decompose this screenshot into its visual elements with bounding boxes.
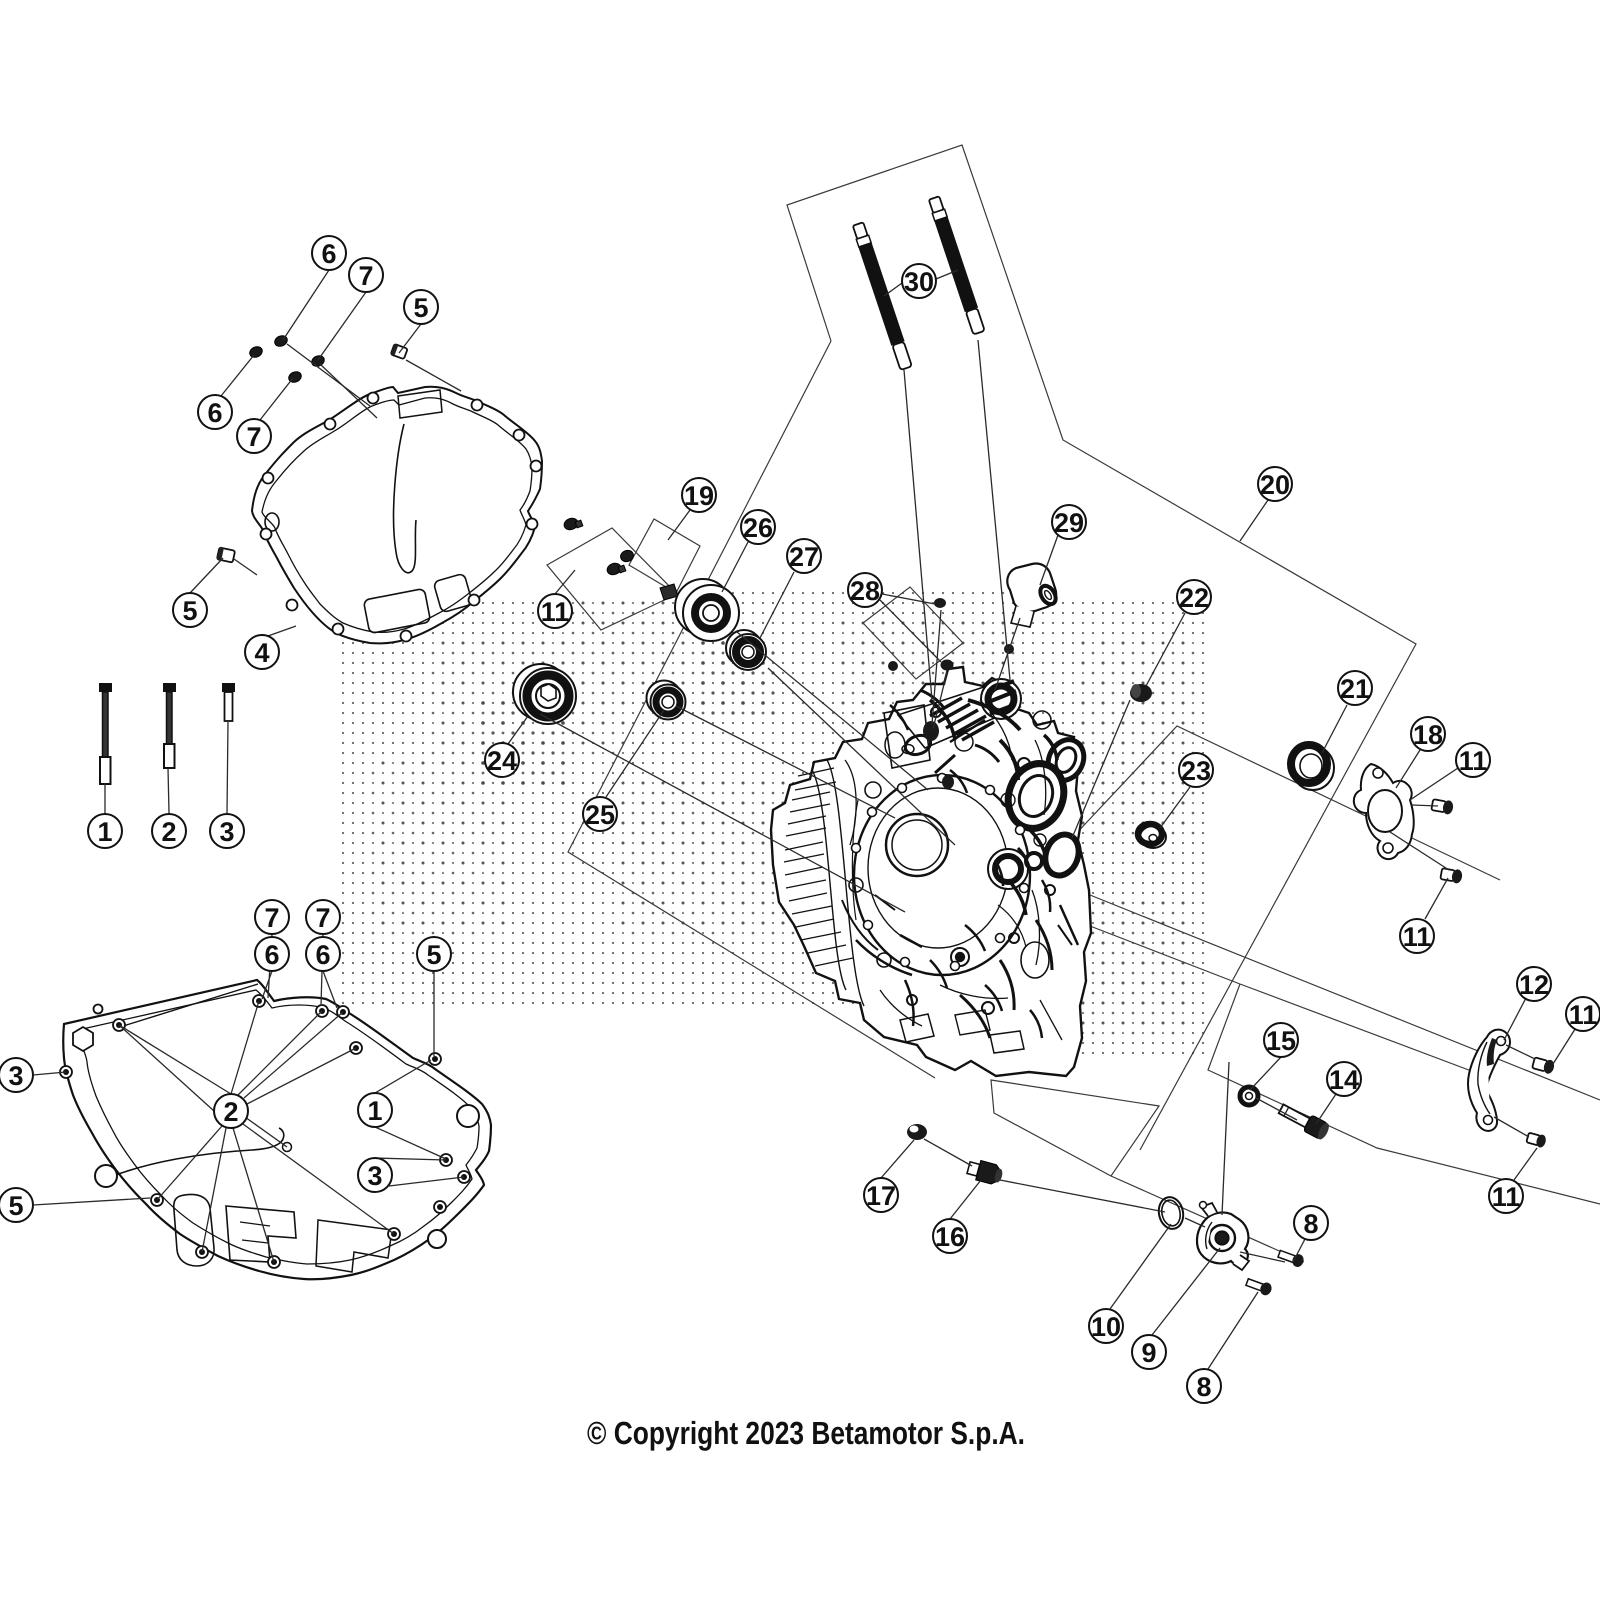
svg-text:18: 18 [1413, 720, 1443, 750]
svg-text:9: 9 [1141, 1338, 1156, 1368]
svg-text:14: 14 [1329, 1065, 1359, 1095]
svg-text:20: 20 [1260, 470, 1290, 500]
svg-text:7: 7 [358, 261, 373, 291]
svg-text:10: 10 [1091, 1312, 1121, 1342]
svg-text:7: 7 [264, 903, 279, 933]
svg-text:26: 26 [743, 513, 773, 543]
svg-text:4: 4 [254, 638, 269, 668]
svg-text:23: 23 [1181, 756, 1211, 786]
svg-text:5: 5 [413, 293, 428, 323]
svg-text:5: 5 [426, 940, 441, 970]
svg-text:30: 30 [904, 267, 934, 297]
svg-text:1: 1 [367, 1096, 382, 1126]
svg-text:3: 3 [8, 1061, 23, 1091]
svg-text:11: 11 [541, 597, 570, 627]
svg-text:7: 7 [246, 422, 261, 452]
svg-text:6: 6 [207, 398, 222, 428]
svg-text:24: 24 [487, 746, 517, 776]
svg-text:© Copyright 2023 Betamotor S.p: © Copyright 2023 Betamotor S.p.A. [587, 1415, 1025, 1451]
svg-text:8: 8 [1303, 1209, 1318, 1239]
svg-text:1: 1 [97, 817, 112, 847]
svg-text:11: 11 [1569, 1000, 1598, 1030]
svg-text:29: 29 [1054, 508, 1084, 538]
svg-text:22: 22 [1179, 583, 1209, 613]
svg-text:27: 27 [789, 542, 819, 572]
svg-text:25: 25 [585, 800, 615, 830]
svg-text:28: 28 [850, 576, 880, 606]
svg-text:11: 11 [1459, 746, 1488, 776]
svg-text:5: 5 [8, 1191, 23, 1221]
svg-text:21: 21 [1340, 674, 1370, 704]
svg-text:11: 11 [1403, 922, 1432, 952]
svg-text:3: 3 [367, 1161, 382, 1191]
svg-text:3: 3 [219, 817, 234, 847]
svg-text:15: 15 [1266, 1026, 1296, 1056]
svg-text:7: 7 [315, 903, 330, 933]
svg-text:19: 19 [684, 481, 714, 511]
svg-text:2: 2 [223, 1097, 238, 1127]
svg-text:6: 6 [264, 940, 279, 970]
svg-text:6: 6 [315, 940, 330, 970]
svg-text:11: 11 [1492, 1182, 1521, 1212]
svg-text:12: 12 [1519, 970, 1549, 1000]
svg-text:16: 16 [935, 1222, 965, 1252]
svg-text:2: 2 [161, 817, 176, 847]
svg-text:8: 8 [1196, 1372, 1211, 1402]
svg-text:5: 5 [182, 596, 197, 626]
svg-text:6: 6 [321, 239, 336, 269]
svg-text:17: 17 [866, 1181, 896, 1211]
